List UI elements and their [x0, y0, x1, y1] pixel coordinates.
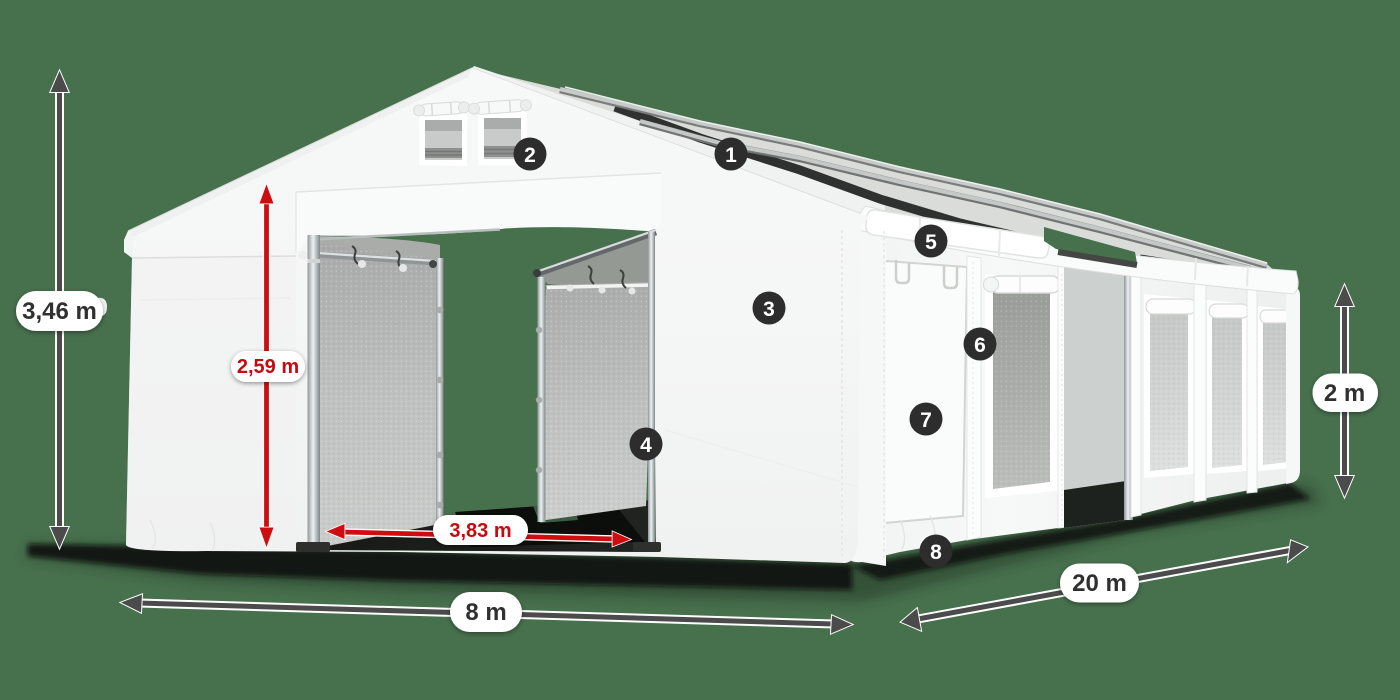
svg-text:6: 6 [974, 334, 986, 357]
svg-text:2,59 m: 2,59 m [237, 356, 299, 378]
svg-text:3: 3 [763, 298, 775, 321]
svg-text:20 m: 20 m [1072, 570, 1127, 597]
svg-text:3,46 m: 3,46 m [22, 298, 97, 325]
svg-text:2: 2 [524, 144, 536, 167]
svg-text:8 m: 8 m [465, 599, 506, 626]
svg-text:4: 4 [640, 434, 652, 457]
svg-text:8: 8 [930, 541, 942, 564]
svg-text:2 m: 2 m [1324, 380, 1365, 407]
svg-text:3,83 m: 3,83 m [449, 520, 511, 542]
svg-text:7: 7 [920, 409, 932, 432]
svg-text:5: 5 [925, 231, 937, 254]
svg-text:1: 1 [725, 144, 737, 167]
